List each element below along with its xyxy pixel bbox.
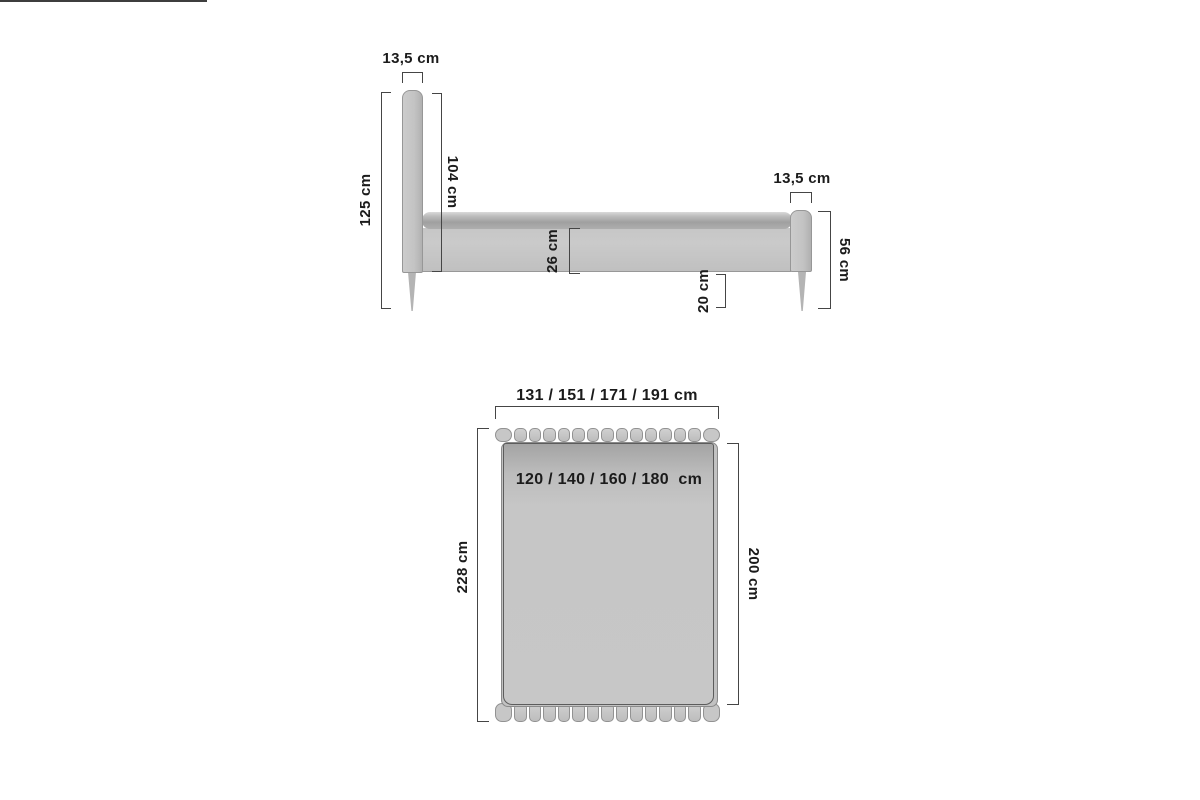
dim-overall-height-bracket: [381, 92, 391, 309]
bed-dimensions-diagram: 13,5 cm 125 cm 104 cm 26 cm 20 cm 13,5 c…: [0, 0, 1200, 800]
slat: [688, 428, 701, 442]
headboard-slats: [495, 428, 720, 442]
slat: [514, 428, 527, 442]
dim-headboard-thickness-label: 13,5 cm: [361, 49, 461, 69]
slat: [703, 428, 720, 442]
dim-footboard-thickness-label: 13,5 cm: [752, 169, 852, 189]
slat: [529, 428, 542, 442]
slat: [630, 428, 643, 442]
footboard-leg: [797, 272, 807, 311]
top-view: 131 / 151 / 171 / 191 cm 120 / 140 / 160…: [0, 0, 1200, 2]
slat: [674, 428, 687, 442]
dim-mattress-length-label: 200 cm: [743, 524, 763, 624]
dim-overall-width-label: 131 / 151 / 171 / 191 cm: [507, 386, 707, 406]
dim-frame-height-bracket: [569, 228, 580, 274]
dim-footboard-height-label: 56 cm: [834, 210, 854, 310]
slat: [558, 428, 571, 442]
dim-overall-length-label: 228 cm: [453, 517, 473, 617]
dim-overall-height-label: 125 cm: [356, 150, 376, 250]
slat: [572, 428, 585, 442]
slat: [601, 428, 614, 442]
dim-mattress-length-bracket: [727, 443, 739, 705]
mattress-head-line: [0, 0, 207, 2]
dim-overall-width-bracket: [495, 406, 719, 419]
headboard-leg: [407, 272, 417, 311]
dim-headboard-height-label: 104 cm: [442, 132, 462, 232]
slat: [587, 428, 600, 442]
slat: [659, 428, 672, 442]
dim-clearance-label: 20 cm: [694, 241, 714, 341]
dim-footboard-height-bracket: [818, 211, 831, 309]
dim-headboard-thickness-bracket: [402, 72, 423, 83]
slat: [645, 428, 658, 442]
slat: [543, 428, 556, 442]
bed-frame-side-rail: [422, 228, 791, 272]
dim-overall-length-bracket: [477, 428, 489, 722]
footboard-panel: [790, 210, 812, 272]
dim-headboard-height-bracket: [432, 93, 442, 272]
headboard-panel: [402, 90, 423, 273]
dim-mattress-width-label: 120 / 140 / 160 / 180 cm: [505, 470, 713, 490]
dim-frame-height-label: 26 cm: [543, 201, 563, 301]
dim-clearance-bracket: [716, 274, 726, 308]
slat: [616, 428, 629, 442]
slat: [495, 428, 512, 442]
mattress-side: [422, 212, 792, 229]
dim-footboard-thickness-bracket: [790, 192, 812, 203]
